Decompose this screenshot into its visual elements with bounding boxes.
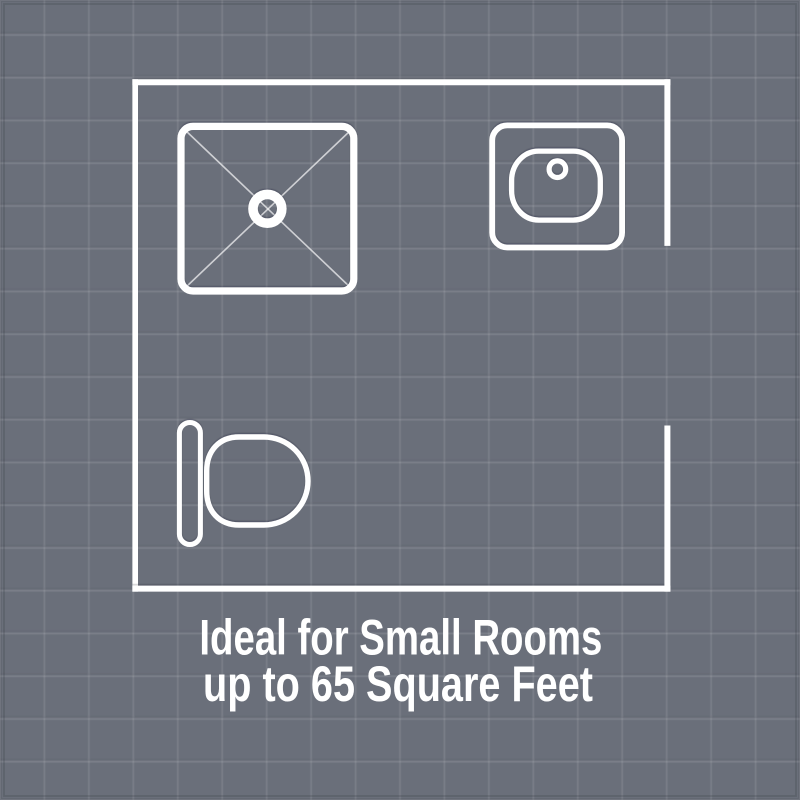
svg-text:up to 65 Square Feet: up to 65 Square Feet	[203, 656, 593, 712]
